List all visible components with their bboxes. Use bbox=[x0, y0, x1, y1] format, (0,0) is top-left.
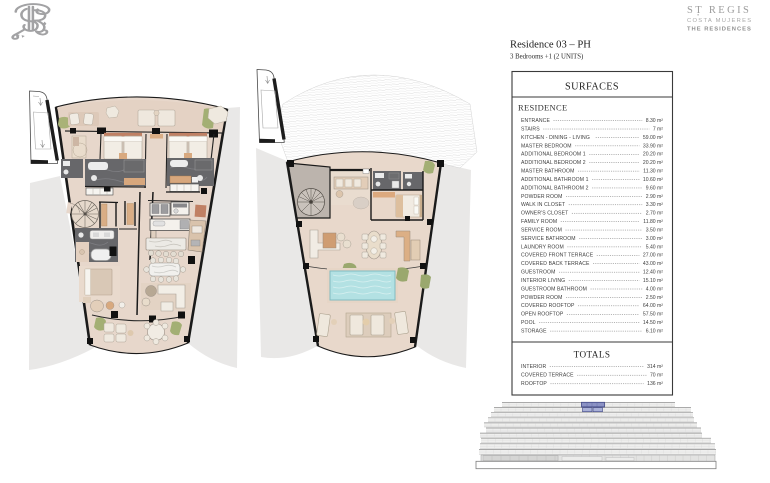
svg-text:3.00 m²: 3.00 m² bbox=[646, 236, 664, 242]
svg-text:Residence 03 – PH: Residence 03 – PH bbox=[510, 40, 591, 51]
svg-text:POWDER ROOM: POWDER ROOM bbox=[521, 295, 563, 301]
svg-text:314 m²: 314 m² bbox=[647, 364, 663, 370]
svg-text:STAIRS: STAIRS bbox=[521, 126, 540, 132]
svg-text:6.10 m²: 6.10 m² bbox=[646, 329, 664, 335]
svg-text:ADDITIONAL BEDROOM 2: ADDITIONAL BEDROOM 2 bbox=[521, 160, 586, 166]
svg-text:136 m²: 136 m² bbox=[647, 381, 663, 387]
svg-text:59.00 m²: 59.00 m² bbox=[643, 135, 663, 141]
svg-text:WALK IN CLOSET: WALK IN CLOSET bbox=[521, 202, 565, 208]
svg-text:POOL: POOL bbox=[521, 320, 536, 326]
svg-text:COSTA MUJERES: COSTA MUJERES bbox=[687, 18, 752, 24]
svg-text:9.60 m²: 9.60 m² bbox=[646, 185, 664, 191]
svg-text:SERVICE BATHROOM: SERVICE BATHROOM bbox=[521, 236, 576, 242]
svg-text:SERVICE ROOM: SERVICE ROOM bbox=[521, 227, 562, 233]
svg-text:3.50 m²: 3.50 m² bbox=[646, 227, 664, 233]
svg-text:2.90 m²: 2.90 m² bbox=[646, 194, 664, 200]
svg-text:3 Bedrooms +1 (2 UNITS): 3 Bedrooms +1 (2 UNITS) bbox=[510, 54, 583, 61]
svg-text:ADDITIONAL BEDROOM 1: ADDITIONAL BEDROOM 1 bbox=[521, 152, 586, 158]
svg-text:SURFACES: SURFACES bbox=[565, 82, 619, 93]
svg-text:ROOFTOP: ROOFTOP bbox=[521, 381, 547, 387]
svg-text:POWDER ROOM: POWDER ROOM bbox=[521, 194, 563, 200]
svg-text:ADDITIONAL BATHROOM 1: ADDITIONAL BATHROOM 1 bbox=[521, 177, 589, 183]
svg-text:ST REGIS: ST REGIS bbox=[687, 5, 751, 16]
svg-text:11.30 m²: 11.30 m² bbox=[643, 169, 663, 175]
svg-text:14.50 m²: 14.50 m² bbox=[643, 320, 663, 326]
svg-text:4.00 m²: 4.00 m² bbox=[646, 286, 664, 292]
svg-text:FAMILY ROOM: FAMILY ROOM bbox=[521, 219, 557, 225]
svg-text:12.40 m²: 12.40 m² bbox=[643, 270, 663, 276]
svg-text:MASTER BEDROOM: MASTER BEDROOM bbox=[521, 143, 572, 149]
svg-text:OWNER'S CLOSET: OWNER'S CLOSET bbox=[521, 211, 568, 217]
svg-text:7 m²: 7 m² bbox=[653, 126, 663, 132]
svg-text:OPEN ROOFTOP: OPEN ROOFTOP bbox=[521, 312, 564, 318]
svg-text:TOTALS: TOTALS bbox=[574, 350, 611, 360]
svg-text:STORAGE: STORAGE bbox=[521, 329, 547, 335]
svg-text:20.20 m²: 20.20 m² bbox=[643, 152, 663, 158]
svg-text:INTERIOR: INTERIOR bbox=[521, 364, 546, 370]
svg-text:10.60 m²: 10.60 m² bbox=[643, 177, 663, 183]
svg-text:COVERED ROOFTOP: COVERED ROOFTOP bbox=[521, 303, 575, 309]
svg-text:MASTER BATHROOM: MASTER BATHROOM bbox=[521, 169, 575, 175]
svg-text:KITCHEN - DINING - LIVING: KITCHEN - DINING - LIVING bbox=[521, 135, 590, 141]
svg-text:THE RESIDENCES: THE RESIDENCES bbox=[687, 27, 752, 33]
svg-text:43.00 m²: 43.00 m² bbox=[643, 261, 663, 267]
svg-text:COVERED TERRACE: COVERED TERRACE bbox=[521, 373, 574, 379]
svg-text:64.00 m²: 64.00 m² bbox=[643, 303, 663, 309]
svg-text:2.50 m²: 2.50 m² bbox=[646, 295, 664, 301]
svg-text:COVERED FRONT TERRACE: COVERED FRONT TERRACE bbox=[521, 253, 594, 259]
svg-text:15.10 m²: 15.10 m² bbox=[643, 278, 663, 284]
svg-text:ADDITIONAL BATHROOM 2: ADDITIONAL BATHROOM 2 bbox=[521, 185, 589, 191]
svg-text:33.90 m²: 33.90 m² bbox=[643, 143, 663, 149]
svg-text:3.30 m²: 3.30 m² bbox=[646, 202, 664, 208]
svg-text:GUESTROOM: GUESTROOM bbox=[521, 270, 555, 276]
svg-text:RESIDENCE: RESIDENCE bbox=[518, 103, 567, 113]
svg-text:2.70 m²: 2.70 m² bbox=[646, 211, 664, 217]
svg-text:COVERED BACK TERRACE: COVERED BACK TERRACE bbox=[521, 261, 590, 267]
svg-text:ENTRANCE: ENTRANCE bbox=[521, 118, 550, 124]
svg-text:70 m²: 70 m² bbox=[650, 373, 663, 379]
svg-text:27.00 m²: 27.00 m² bbox=[643, 253, 663, 259]
svg-text:GUESTROOM BATHROOM: GUESTROOM BATHROOM bbox=[521, 286, 587, 292]
svg-text:57.50 m²: 57.50 m² bbox=[643, 312, 663, 318]
svg-text:LAUNDRY ROOM: LAUNDRY ROOM bbox=[521, 244, 564, 250]
svg-text:INTERIOR LIVING: INTERIOR LIVING bbox=[521, 278, 565, 284]
svg-text:11.80 m²: 11.80 m² bbox=[643, 219, 663, 225]
svg-text:20.20 m²: 20.20 m² bbox=[643, 160, 663, 166]
svg-text:5.40 m²: 5.40 m² bbox=[646, 244, 664, 250]
svg-text:8.30 m²: 8.30 m² bbox=[646, 118, 664, 124]
